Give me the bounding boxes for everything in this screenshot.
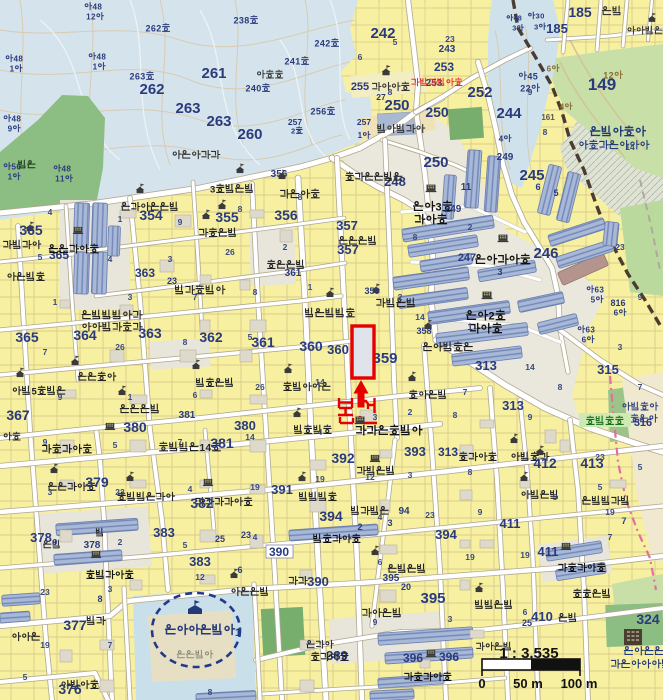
svg-text:6: 6	[547, 64, 552, 73]
svg-text:14: 14	[315, 377, 325, 387]
svg-text:377: 377	[63, 617, 87, 633]
svg-text:8: 8	[468, 467, 473, 477]
svg-text:3: 3	[168, 254, 173, 264]
svg-text:0: 0	[540, 11, 544, 20]
svg-text:4: 4	[188, 484, 193, 494]
svg-text:12: 12	[365, 472, 375, 482]
svg-text:5: 5	[393, 37, 398, 47]
svg-text:6: 6	[523, 607, 528, 617]
svg-text:390: 390	[269, 545, 289, 559]
svg-text:2: 2	[233, 15, 238, 25]
svg-text:4: 4	[318, 427, 323, 437]
svg-text:410: 410	[531, 609, 553, 624]
svg-text:365: 365	[15, 329, 39, 345]
svg-text:244: 244	[496, 105, 522, 122]
svg-text:5: 5	[598, 482, 603, 492]
svg-text:8: 8	[388, 87, 393, 97]
svg-text:25: 25	[215, 534, 225, 544]
svg-text:1: 1	[358, 131, 363, 140]
svg-text:8: 8	[453, 410, 458, 420]
svg-text:382: 382	[190, 495, 214, 511]
svg-text:14: 14	[625, 142, 635, 152]
svg-text:396: 396	[403, 651, 423, 665]
svg-text:253: 253	[434, 60, 454, 74]
svg-text:26: 26	[225, 247, 235, 257]
svg-text:3: 3	[534, 22, 538, 31]
svg-text:4: 4	[378, 512, 383, 522]
svg-text:396: 396	[439, 650, 459, 664]
svg-text:27: 27	[376, 92, 386, 102]
svg-text:3: 3	[599, 285, 604, 294]
svg-text:19: 19	[250, 482, 260, 492]
svg-text:8: 8	[101, 52, 106, 61]
svg-text:324: 324	[636, 611, 660, 627]
svg-text:9: 9	[8, 124, 13, 133]
svg-text:20: 20	[401, 582, 411, 592]
svg-text:5: 5	[638, 462, 643, 472]
svg-text:354: 354	[139, 207, 163, 223]
svg-text:364: 364	[73, 327, 97, 343]
svg-text:4: 4	[253, 532, 258, 542]
svg-text:395: 395	[420, 590, 445, 607]
svg-text:5: 5	[553, 492, 558, 502]
svg-text:6: 6	[135, 71, 140, 81]
svg-text:359: 359	[364, 286, 379, 296]
svg-text:2: 2	[145, 23, 150, 33]
svg-text:19: 19	[315, 474, 325, 484]
svg-text:4: 4	[560, 102, 565, 111]
svg-text:8: 8	[66, 164, 71, 173]
svg-text:9: 9	[53, 537, 58, 547]
svg-text:365: 365	[19, 222, 43, 238]
svg-text:261: 261	[201, 65, 226, 82]
svg-text:6: 6	[151, 23, 156, 33]
svg-text:9: 9	[178, 217, 183, 227]
svg-text:2: 2	[520, 83, 525, 93]
svg-text:250: 250	[425, 104, 449, 120]
svg-text:94: 94	[398, 506, 410, 517]
svg-text:8: 8	[183, 337, 188, 347]
svg-text:379: 379	[85, 474, 109, 490]
svg-text:263: 263	[175, 100, 200, 117]
svg-text:8: 8	[298, 192, 303, 202]
svg-text:9: 9	[58, 392, 63, 402]
svg-text:2: 2	[284, 56, 289, 66]
svg-text:1: 1	[60, 174, 65, 183]
svg-text:8: 8	[18, 54, 23, 63]
svg-text:8: 8	[97, 594, 102, 604]
svg-text:5: 5	[23, 672, 28, 682]
svg-text:2: 2	[489, 311, 495, 323]
svg-text:100 m: 100 m	[561, 676, 598, 691]
svg-text:23: 23	[595, 452, 605, 462]
svg-text:243: 243	[439, 44, 456, 55]
svg-text:6: 6	[237, 565, 242, 575]
svg-text:2: 2	[283, 242, 288, 252]
svg-text:3: 3	[128, 292, 133, 302]
svg-text:249: 249	[497, 152, 514, 163]
svg-text:8: 8	[97, 2, 102, 11]
svg-text:3: 3	[239, 15, 244, 25]
svg-text:14: 14	[525, 362, 535, 372]
svg-text:313: 313	[438, 445, 458, 459]
svg-text:363: 363	[135, 266, 155, 280]
svg-text:380: 380	[234, 418, 256, 433]
svg-text:3: 3	[497, 267, 502, 277]
svg-text:11: 11	[461, 182, 472, 193]
svg-text:23: 23	[615, 242, 625, 252]
svg-text:3: 3	[512, 24, 516, 33]
svg-text:358: 358	[416, 326, 431, 336]
svg-text:3: 3	[590, 325, 595, 334]
svg-text:2: 2	[245, 83, 250, 93]
svg-text:247: 247	[458, 252, 476, 264]
svg-text:6: 6	[321, 106, 326, 116]
svg-text:4: 4	[48, 207, 53, 217]
svg-text:376: 376	[58, 681, 82, 697]
svg-text:8: 8	[253, 287, 258, 297]
svg-text:367: 367	[6, 407, 30, 423]
svg-text:816: 816	[610, 298, 625, 308]
svg-text:8: 8	[238, 204, 243, 214]
svg-text:393: 393	[404, 444, 426, 459]
svg-text:185: 185	[568, 4, 592, 20]
svg-text:8: 8	[558, 382, 563, 392]
svg-text:361: 361	[251, 334, 275, 350]
svg-text:26: 26	[255, 382, 265, 392]
svg-text:185: 185	[546, 21, 568, 36]
svg-text:14: 14	[415, 312, 425, 322]
svg-text:362: 362	[199, 329, 223, 345]
svg-text:360: 360	[327, 342, 349, 357]
svg-text:7: 7	[108, 640, 113, 650]
svg-text:313: 313	[475, 358, 497, 373]
svg-text:4: 4	[499, 134, 504, 143]
svg-text:6: 6	[378, 557, 383, 567]
svg-text:5: 5	[248, 332, 253, 342]
svg-text:2: 2	[129, 71, 134, 81]
svg-text:1: 1	[118, 214, 123, 224]
svg-text:1: 1	[8, 172, 13, 181]
svg-text:365: 365	[49, 248, 69, 262]
svg-text:5: 5	[113, 440, 118, 450]
svg-text:378: 378	[84, 540, 101, 551]
svg-text:250: 250	[423, 154, 448, 171]
svg-text:2: 2	[325, 38, 330, 48]
svg-text:257: 257	[357, 117, 371, 127]
svg-text:6: 6	[193, 390, 198, 400]
svg-text:5: 5	[183, 540, 188, 550]
svg-text:3: 3	[387, 518, 392, 528]
svg-text:383: 383	[189, 554, 211, 569]
svg-text:4: 4	[251, 83, 256, 93]
svg-text:356: 356	[274, 207, 298, 223]
svg-text:2: 2	[291, 126, 295, 135]
svg-text:9: 9	[373, 617, 378, 627]
svg-text:394: 394	[319, 508, 343, 524]
svg-text:4: 4	[320, 38, 325, 48]
svg-text:6: 6	[535, 182, 540, 192]
svg-text:9: 9	[638, 292, 643, 302]
svg-text:378: 378	[30, 530, 52, 545]
svg-text:3: 3	[448, 614, 453, 624]
svg-text:9: 9	[43, 437, 48, 447]
svg-text:381: 381	[210, 435, 234, 451]
svg-text:411: 411	[538, 544, 559, 559]
svg-text:5: 5	[591, 295, 596, 304]
svg-text:19: 19	[520, 550, 530, 560]
svg-text:394: 394	[435, 527, 457, 542]
svg-text:380: 380	[123, 419, 147, 435]
svg-text:6: 6	[582, 335, 587, 344]
svg-text:23: 23	[40, 587, 50, 597]
svg-text:1: 1	[93, 62, 98, 71]
svg-text:3: 3	[210, 184, 215, 195]
svg-text:357: 357	[337, 242, 359, 257]
svg-text:23: 23	[115, 487, 125, 497]
svg-text:4: 4	[108, 254, 113, 264]
svg-text:2: 2	[468, 222, 473, 232]
svg-text:23: 23	[425, 510, 435, 520]
svg-text:8: 8	[16, 114, 21, 123]
svg-text:161: 161	[541, 113, 555, 122]
svg-text:5: 5	[533, 71, 538, 81]
svg-text:316: 316	[634, 417, 652, 429]
svg-text:7: 7	[638, 382, 643, 392]
svg-text:2: 2	[398, 292, 403, 302]
svg-text:411: 411	[500, 516, 521, 531]
svg-text:245: 245	[519, 167, 544, 184]
svg-text:6: 6	[358, 52, 363, 62]
svg-text:1: 1	[603, 70, 608, 80]
svg-text:19: 19	[465, 552, 475, 562]
svg-text:7: 7	[621, 516, 626, 526]
svg-text:7: 7	[608, 532, 613, 542]
svg-text:255: 255	[351, 81, 369, 93]
svg-text:7: 7	[193, 292, 198, 302]
svg-text:391: 391	[271, 482, 293, 497]
svg-text:2: 2	[408, 407, 413, 417]
svg-text:3: 3	[436, 202, 442, 214]
svg-text:2: 2	[118, 537, 123, 547]
svg-text:6: 6	[614, 308, 619, 317]
svg-text:3: 3	[373, 412, 378, 422]
svg-text:355: 355	[215, 209, 239, 225]
svg-text:3: 3	[408, 470, 413, 480]
svg-text:315: 315	[597, 362, 619, 377]
svg-text:395: 395	[383, 573, 400, 584]
svg-text:1: 1	[53, 297, 58, 307]
svg-text:2: 2	[156, 23, 161, 33]
svg-text:0: 0	[256, 83, 261, 93]
svg-text:26: 26	[115, 342, 125, 352]
svg-text:250: 250	[384, 97, 409, 114]
svg-text:3: 3	[108, 584, 113, 594]
svg-text:7: 7	[463, 387, 468, 397]
svg-text:50 m: 50 m	[513, 676, 543, 691]
svg-text:363: 363	[138, 325, 162, 341]
svg-text:2: 2	[91, 12, 96, 21]
svg-text:7: 7	[43, 347, 48, 357]
svg-text:263: 263	[206, 113, 231, 130]
svg-text:2: 2	[314, 38, 319, 48]
svg-text:8: 8	[518, 14, 522, 23]
svg-text:412: 412	[533, 455, 557, 471]
svg-text:1: 1	[467, 322, 472, 332]
svg-text:3: 3	[618, 342, 623, 352]
svg-text:1: 1	[10, 64, 15, 73]
svg-text:23: 23	[167, 276, 177, 286]
svg-text:5: 5	[38, 252, 43, 262]
svg-text:4: 4	[527, 71, 532, 81]
svg-text:360: 360	[299, 338, 323, 354]
svg-text:359: 359	[372, 350, 397, 367]
svg-text:246: 246	[533, 245, 558, 262]
svg-text:8: 8	[208, 687, 213, 697]
svg-text:9: 9	[528, 87, 533, 97]
svg-text:383: 383	[153, 525, 175, 540]
svg-text:3: 3	[140, 71, 145, 81]
svg-text:381: 381	[179, 410, 196, 421]
svg-text:5: 5	[316, 106, 321, 116]
svg-text:0: 0	[478, 676, 485, 691]
svg-text:260: 260	[237, 126, 262, 143]
svg-text:4: 4	[290, 56, 295, 66]
svg-text:2: 2	[609, 70, 614, 80]
svg-text:3: 3	[48, 487, 53, 497]
svg-text:5: 5	[553, 188, 558, 198]
svg-text:252: 252	[467, 84, 492, 101]
svg-text:23: 23	[445, 34, 455, 44]
svg-text:1: 1	[308, 282, 313, 292]
svg-text:392: 392	[331, 450, 355, 466]
svg-text:8: 8	[543, 127, 548, 137]
svg-text:2: 2	[357, 522, 362, 532]
svg-text:8: 8	[413, 232, 418, 242]
svg-text:262: 262	[139, 81, 164, 98]
svg-text:361: 361	[285, 268, 302, 279]
svg-text:1: 1	[295, 56, 300, 66]
svg-text:313: 313	[502, 398, 524, 413]
svg-text:8: 8	[244, 15, 249, 25]
svg-text:25: 25	[522, 618, 532, 628]
svg-text:14: 14	[245, 432, 255, 442]
svg-text:249: 249	[445, 204, 462, 215]
svg-text:2: 2	[310, 106, 315, 116]
svg-text:1: 1	[128, 392, 133, 402]
svg-text:12: 12	[195, 572, 205, 582]
svg-text:23: 23	[241, 530, 251, 540]
svg-text:9: 9	[478, 507, 483, 517]
svg-text:390: 390	[307, 574, 329, 589]
svg-text:9: 9	[528, 412, 533, 422]
svg-text:7: 7	[178, 437, 183, 447]
svg-text:19: 19	[40, 640, 50, 650]
svg-text:19: 19	[605, 507, 615, 517]
svg-text:5: 5	[32, 386, 38, 397]
svg-text:357: 357	[336, 218, 358, 233]
